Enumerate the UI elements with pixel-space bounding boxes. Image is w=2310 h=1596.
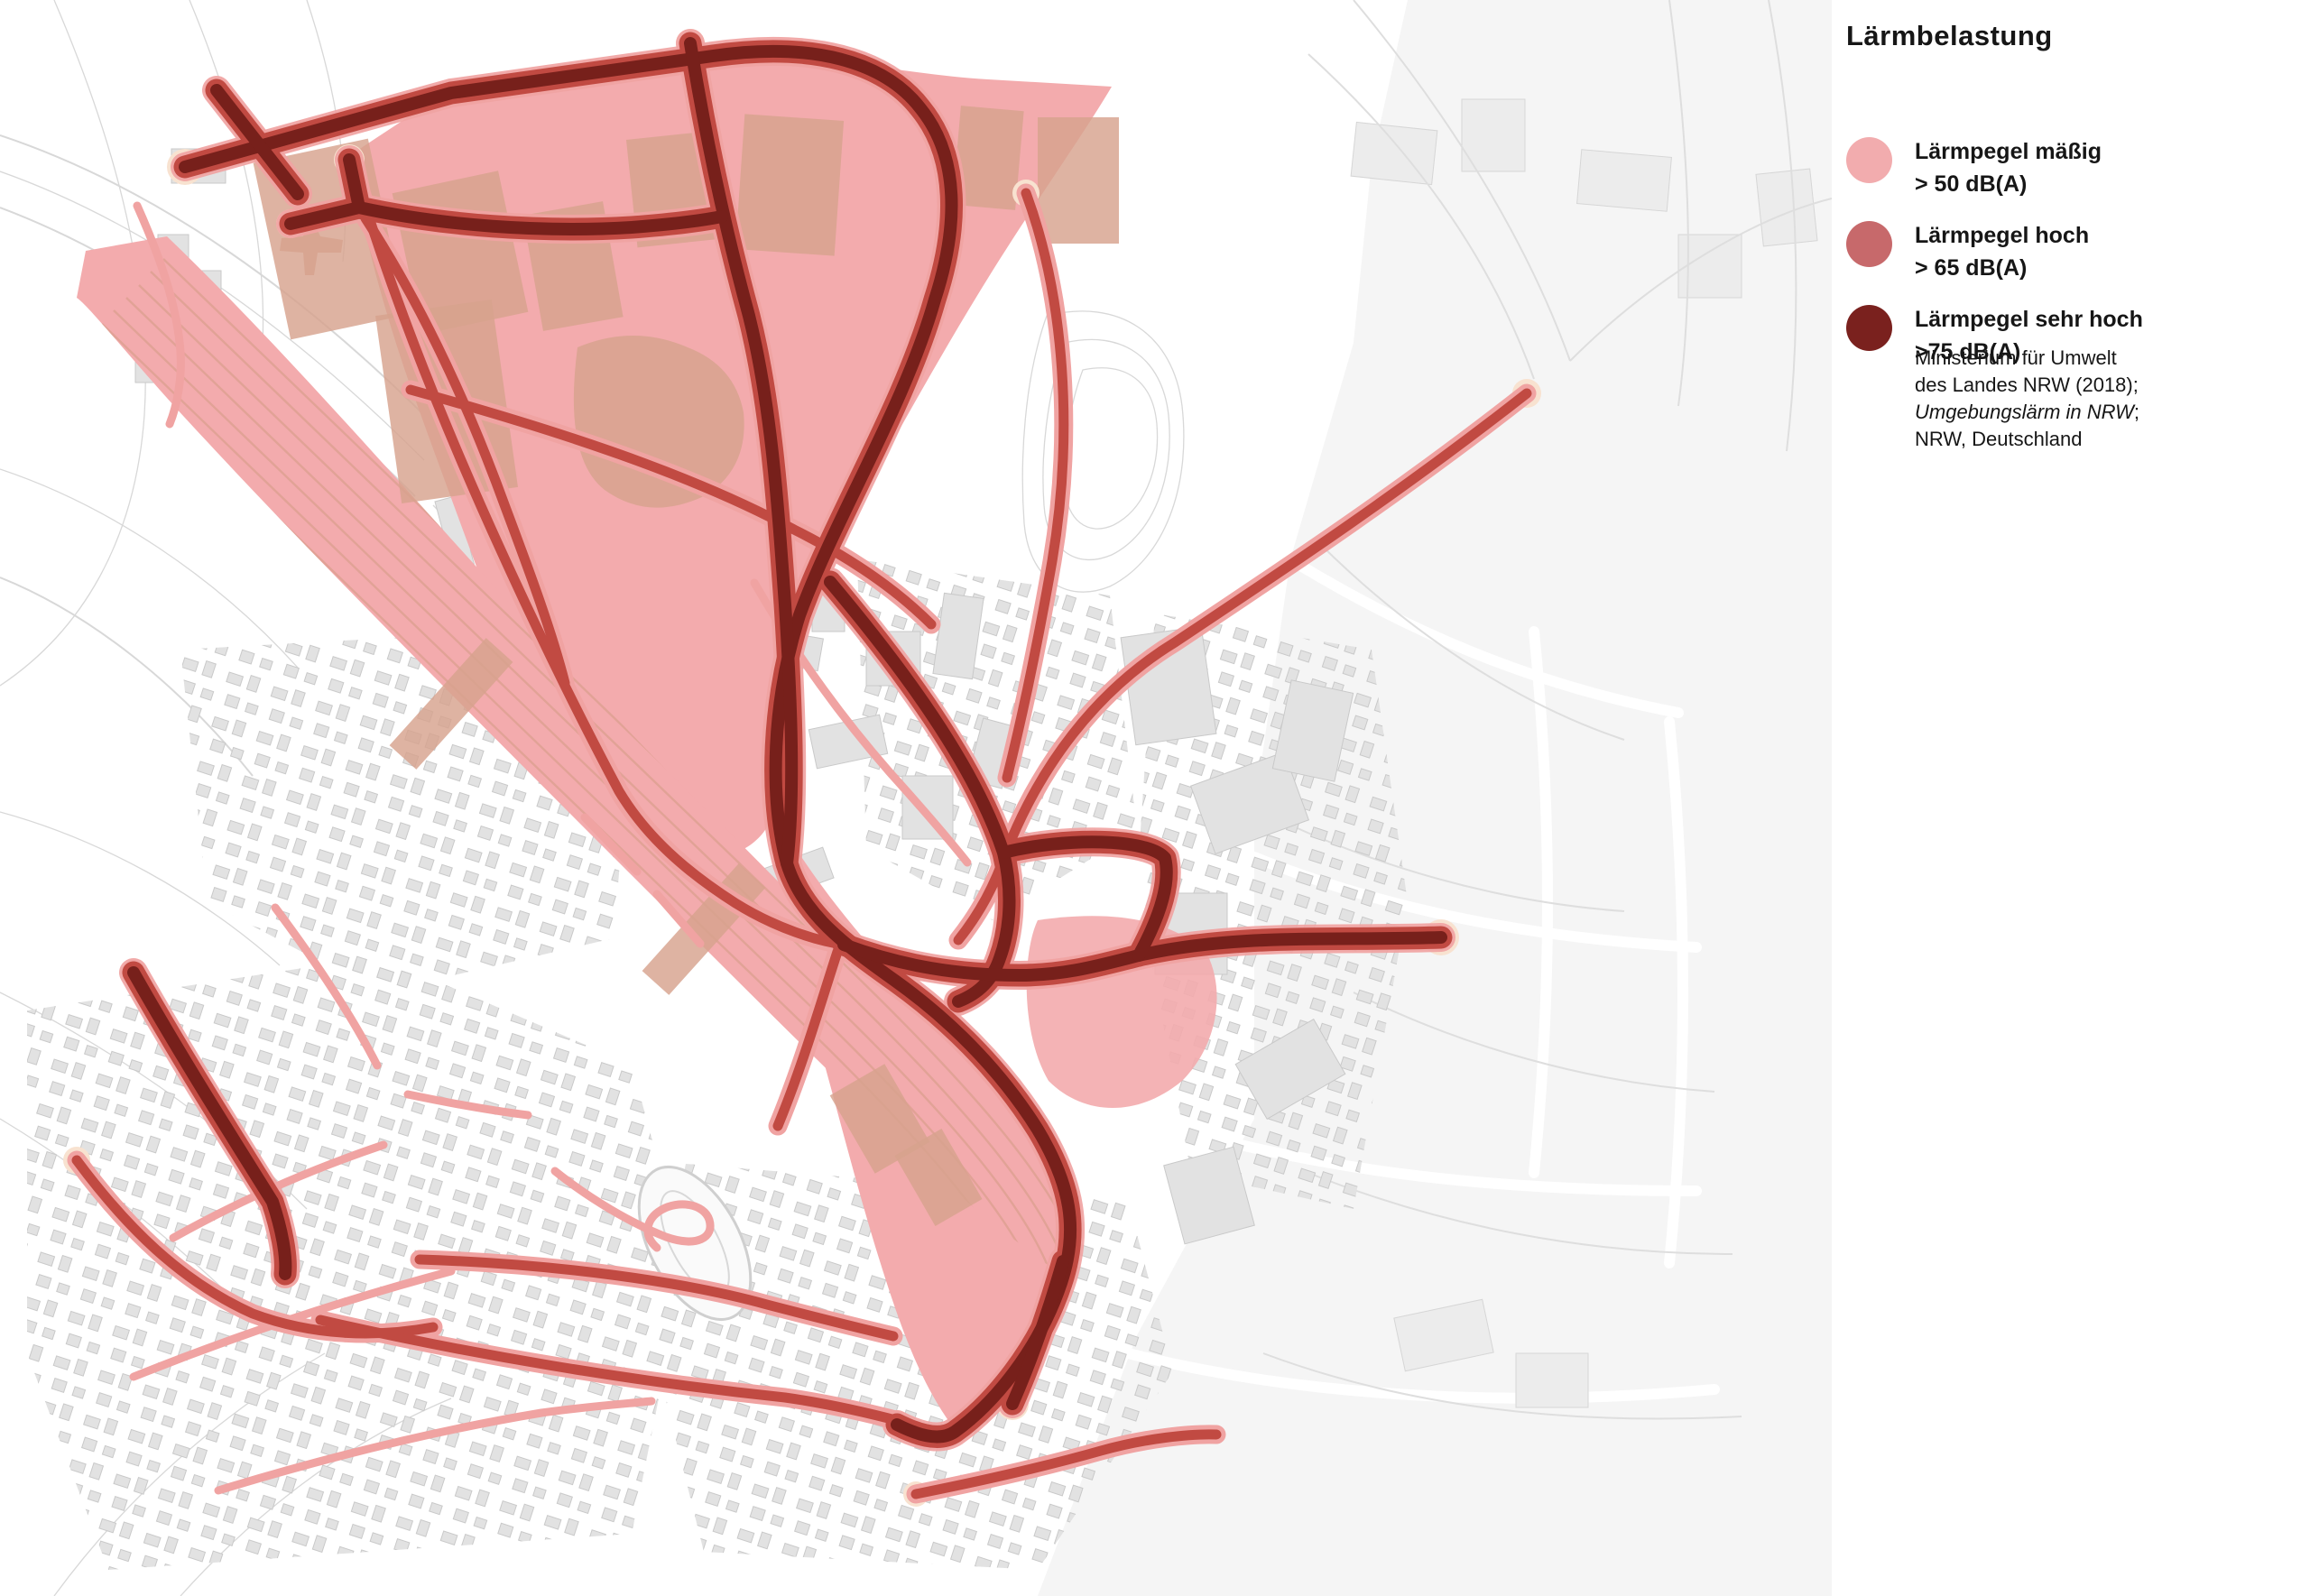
noise-map-canvas: [0, 0, 1832, 1596]
legend-item-label: Lärmpegel sehr hoch: [1915, 303, 2143, 336]
source-line: Ministerium für Umwelt: [1915, 345, 2139, 372]
source-line: Umgebungslärm in NRW;: [1915, 399, 2139, 426]
legend-item-moderate: Lärmpegel mäßig > 50 dB(A): [1846, 135, 2143, 200]
noise-moderate-swatch-icon: [1846, 137, 1892, 183]
legend-item-label: Lärmpegel mäßig: [1915, 135, 2143, 168]
page: { "legend": { "title": "Lärmbelastung", …: [0, 0, 2310, 1596]
source-line: des Landes NRW (2018);: [1915, 372, 2139, 399]
noise-map: [0, 0, 1832, 1596]
legend-item-high: Lärmpegel hoch > 65 dB(A): [1846, 219, 2143, 284]
legend-item-threshold: > 65 dB(A): [1915, 252, 2143, 284]
legend-item-label: Lärmpegel hoch: [1915, 219, 2143, 252]
noise-high-swatch-icon: [1846, 221, 1892, 267]
legend-source: Ministerium für Umwelt des Landes NRW (2…: [1915, 345, 2139, 453]
legend: Lärmbelastung Lärmpegel mäßig > 50 dB(A)…: [1846, 20, 2297, 52]
legend-item-threshold: > 50 dB(A): [1915, 168, 2143, 200]
noise-very-high-swatch-icon: [1846, 305, 1892, 351]
legend-title: Lärmbelastung: [1846, 20, 2297, 52]
source-line: NRW, Deutschland: [1915, 426, 2139, 453]
